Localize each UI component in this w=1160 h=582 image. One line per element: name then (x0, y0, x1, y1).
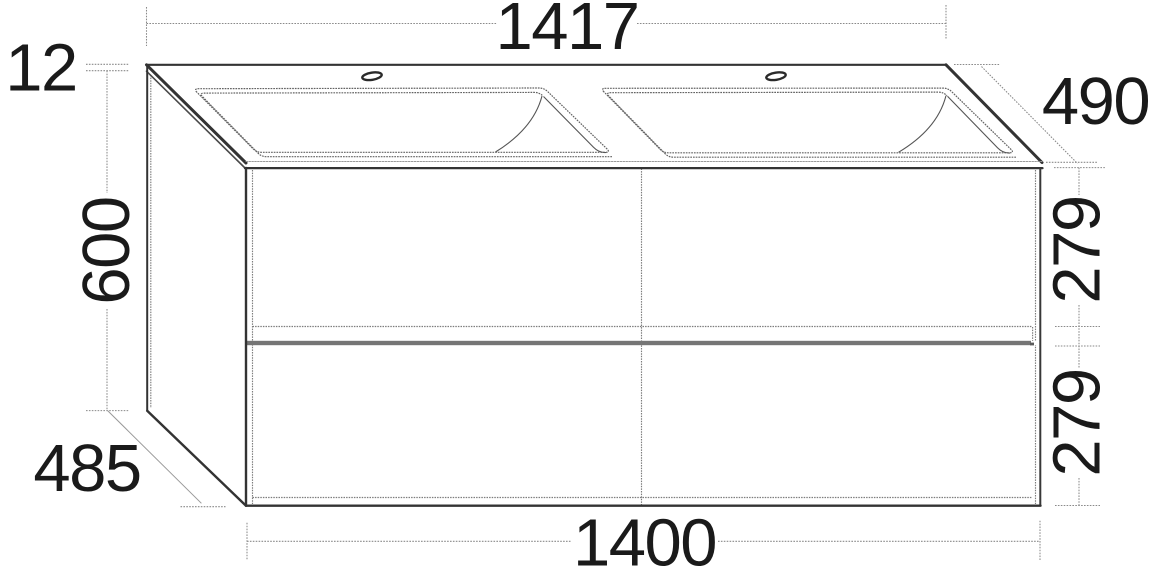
svg-text:490: 490 (1042, 64, 1149, 139)
svg-text:600: 600 (69, 197, 144, 304)
svg-text:1417: 1417 (495, 0, 638, 64)
svg-text:12: 12 (5, 30, 77, 105)
svg-text:279: 279 (1039, 369, 1114, 476)
svg-text:279: 279 (1039, 196, 1114, 303)
svg-text:1400: 1400 (573, 506, 716, 581)
svg-text:485: 485 (33, 431, 140, 506)
